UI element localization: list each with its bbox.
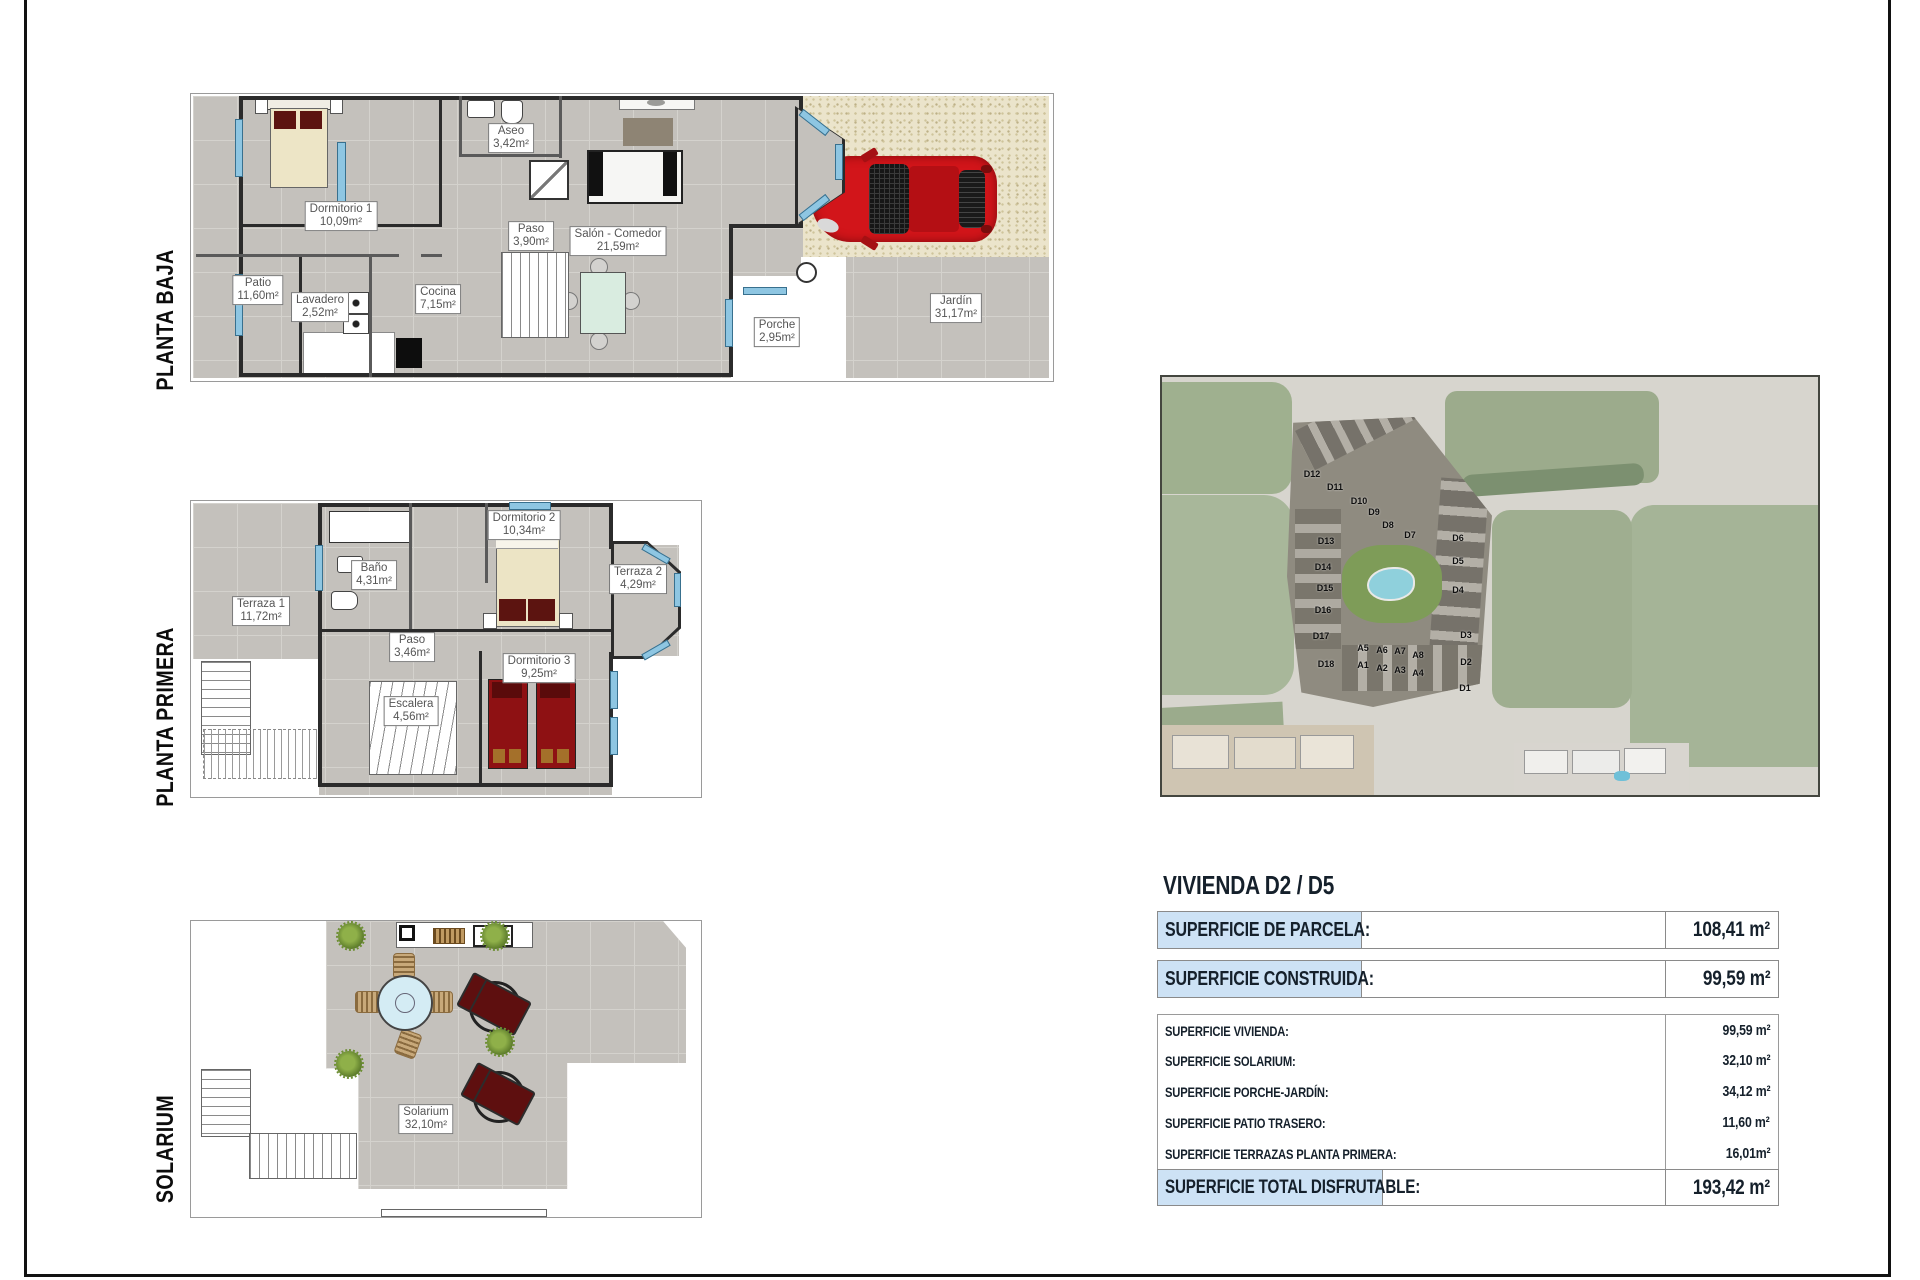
building-label-D14: D14: [1315, 562, 1332, 572]
building-label-D4: D4: [1452, 585, 1464, 595]
summary-title: VIVIENDA D2 / D5: [1163, 870, 1377, 901]
room-label-porche: Porche2,95m²: [754, 317, 800, 347]
floorplan-planta-baja: Dormitorio 110,09m² Aseo3,42m² Paso3,90m…: [190, 93, 1054, 382]
stairs: [201, 1069, 251, 1137]
room-label-escalera: Escalera4,56m²: [384, 696, 439, 726]
landing-strip: [381, 1209, 547, 1217]
plant: [338, 923, 364, 949]
building-label-D12: D12: [1304, 469, 1321, 479]
building-label-D7: D7: [1404, 530, 1416, 540]
floorplan-solarium: Solarium32,10m²: [190, 920, 702, 1218]
plan-sheet: PLANTA BAJA: [0, 0, 1920, 1280]
building-label-D15: D15: [1317, 583, 1334, 593]
building-label-D6: D6: [1452, 533, 1464, 543]
building-label-D10: D10: [1351, 496, 1368, 506]
room-label-paso2: Paso3,46m²: [389, 632, 435, 662]
building-label-A8: A8: [1412, 650, 1424, 660]
room-label-banyo: Baño4,31m²: [351, 560, 397, 590]
building-label-D17: D17: [1313, 631, 1330, 641]
building-label-A3: A3: [1394, 665, 1406, 675]
round-table: [377, 975, 433, 1031]
site-aerial-map: D12D11D10D9D8D7D13D14D15D16D17D18D6D5D4D…: [1160, 375, 1820, 797]
plan-label-planta-baja: PLANTA BAJA: [152, 249, 180, 390]
shower: [529, 160, 569, 200]
dining-chair: [590, 332, 608, 350]
sink: [467, 100, 495, 118]
site-building-labels: D12D11D10D9D8D7D13D14D15D16D17D18D6D5D4D…: [1162, 377, 1818, 795]
row-superficie-patio-trasero: SUPERFICIE PATIO TRASERO: 11,60 m²: [1157, 1107, 1779, 1139]
building-label-D5: D5: [1452, 556, 1464, 566]
room-label-paso: Paso3,90m²: [508, 221, 554, 251]
toilet: [331, 591, 358, 610]
page-border-right: [1888, 0, 1891, 1277]
row-superficie-total: SUPERFICIE TOTAL DISFRUTABLE: 193,42 m²: [1157, 1169, 1779, 1206]
kitchen-counter: [303, 332, 395, 376]
plan-label-solarium: SOLARIUM: [152, 1095, 180, 1203]
building-label-A4: A4: [1412, 668, 1424, 678]
building-label-D9: D9: [1368, 507, 1380, 517]
plant: [482, 923, 508, 949]
floorplan-planta-primera: Terraza 111,72m² Baño4,31m² Dormitorio 2…: [190, 500, 702, 798]
planter-box: [399, 925, 415, 941]
room-label-jardin: Jardín31,17m²: [930, 293, 982, 323]
room-label-lavadero: Lavadero2,52m²: [291, 292, 349, 322]
row-superficie-solarium: SUPERFICIE SOLARIUM: 32,10 m²: [1157, 1045, 1779, 1077]
toilet: [501, 100, 523, 124]
building-label-A7: A7: [1394, 646, 1406, 656]
room-label-patio: Patio11,60m²: [232, 275, 283, 305]
stairs: [501, 252, 569, 338]
stove: [396, 338, 422, 368]
building-label-D18: D18: [1318, 659, 1335, 669]
building-label-A6: A6: [1376, 645, 1388, 655]
grill: [433, 928, 465, 944]
room-label-aseo: Aseo3,42m²: [488, 123, 534, 153]
building-label-D11: D11: [1327, 482, 1343, 492]
bathtub: [329, 511, 411, 543]
row-superficie-porche-jardin: SUPERFICIE PORCHE-JARDÍN: 34,12 m²: [1157, 1076, 1779, 1108]
plant: [487, 1029, 513, 1055]
plant: [336, 1051, 362, 1077]
building-label-A2: A2: [1376, 663, 1388, 673]
stairs: [249, 1133, 357, 1179]
building-label-D16: D16: [1315, 605, 1332, 615]
room-label-terraza2: Terraza 24,29m²: [609, 564, 667, 594]
stairs-escalera: [369, 681, 457, 775]
row-superficie-vivienda: SUPERFICIE VIVIENDA: 99,59 m²: [1157, 1014, 1779, 1047]
building-label-D13: D13: [1318, 536, 1335, 546]
room-label-salon: Salón - Comedor21,59m²: [570, 226, 667, 256]
rug: [623, 118, 673, 146]
room-label-cocina: Cocina7,15m²: [415, 284, 461, 314]
room-label-terraza1: Terraza 111,72m²: [232, 596, 290, 626]
room-label-solarium: Solarium32,10m²: [398, 1104, 453, 1134]
car-windshield: [869, 164, 909, 234]
building-label-D3: D3: [1460, 630, 1472, 640]
row-superficie-parcela: SUPERFICIE DE PARCELA: 108,41 m²: [1157, 911, 1779, 949]
room-label-dormitorio1: Dormitorio 110,09m²: [305, 201, 378, 231]
solarium-deck: [326, 921, 686, 1189]
pergola-hatch: [203, 729, 321, 779]
row-superficie-construida: SUPERFICIE CONSTRUIDA: 99,59 m²: [1157, 960, 1779, 998]
building-label-A1: A1: [1357, 660, 1369, 670]
tree-ring: [796, 262, 817, 283]
page-border-bottom: [24, 1274, 1891, 1277]
row-superficie-terrazas: SUPERFICIE TERRAZAS PLANTA PRIMERA: 16,0…: [1157, 1138, 1779, 1170]
car-rear-window: [959, 170, 985, 228]
room-label-dormitorio2: Dormitorio 210,34m²: [488, 510, 561, 540]
dining-table: [580, 272, 626, 334]
building-label-D8: D8: [1382, 520, 1394, 530]
room-label-dormitorio3: Dormitorio 39,25m²: [503, 653, 576, 683]
building-label-A5: A5: [1357, 643, 1369, 653]
plan-label-planta-primera: PLANTA PRIMERA: [152, 627, 180, 807]
page-border-left: [24, 0, 27, 1277]
building-label-D1: D1: [1459, 683, 1471, 693]
building-label-D2: D2: [1460, 657, 1472, 667]
